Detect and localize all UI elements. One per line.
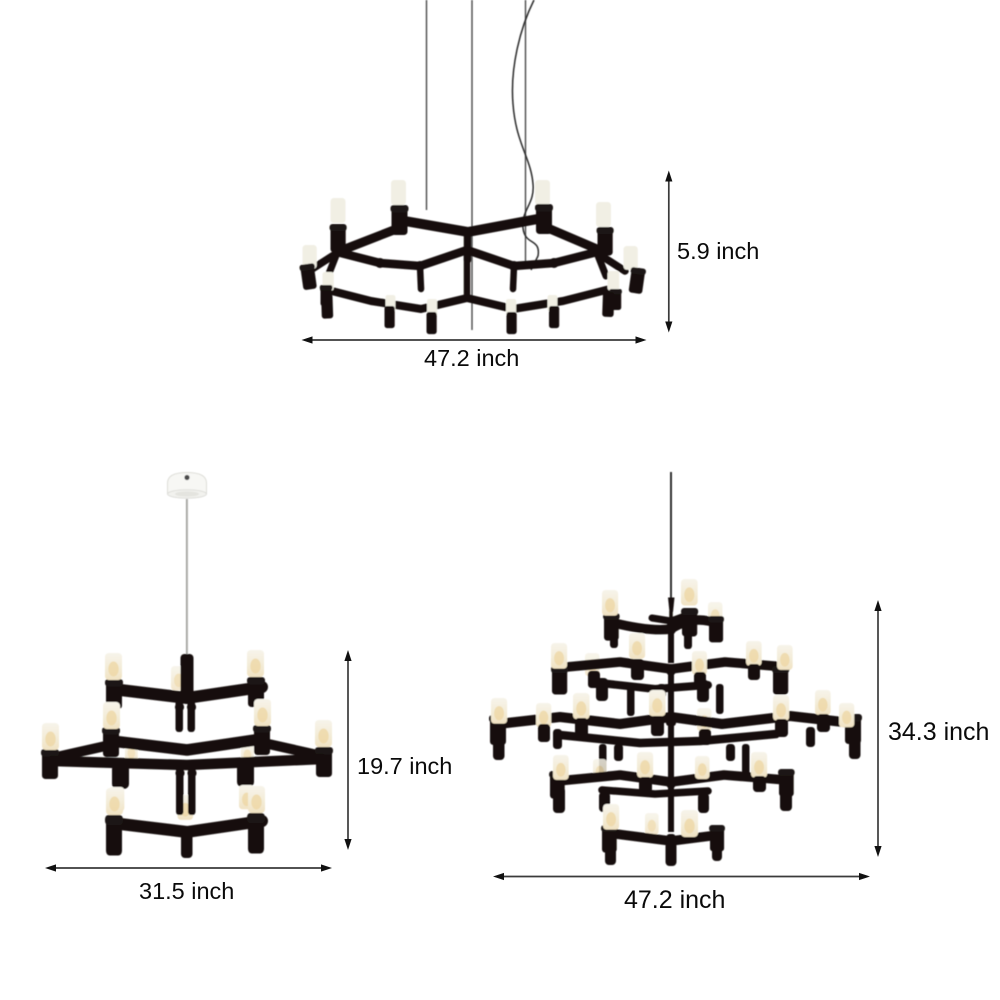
- svg-text:34.3 inch: 34.3 inch: [888, 718, 989, 746]
- svg-text:47.2 inch: 47.2 inch: [624, 886, 725, 914]
- svg-text:19.7 inch: 19.7 inch: [357, 753, 452, 779]
- svg-text:5.9 inch: 5.9 inch: [677, 238, 759, 264]
- svg-text:31.5 inch: 31.5 inch: [139, 878, 234, 904]
- svg-text:47.2 inch: 47.2 inch: [424, 345, 519, 371]
